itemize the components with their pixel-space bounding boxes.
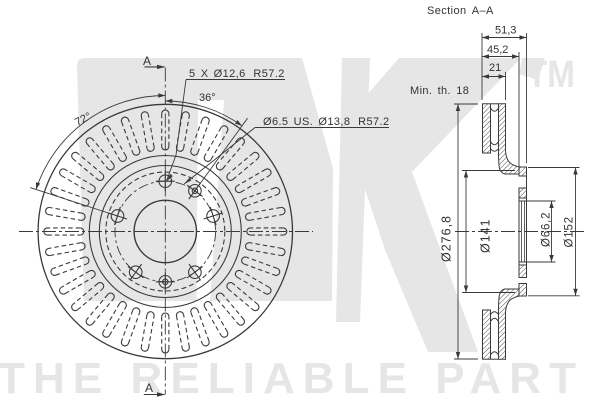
svg-text:Section A–A: Section A–A xyxy=(427,5,494,17)
svg-text:36°: 36° xyxy=(199,92,216,104)
svg-text:THE RELIABLE PART: THE RELIABLE PART xyxy=(0,354,576,400)
svg-text:TM: TM xyxy=(527,54,575,96)
svg-text:Ø152: Ø152 xyxy=(564,216,576,247)
svg-text:Ø6.5 US. Ø13,8 R57.2: Ø6.5 US. Ø13,8 R57.2 xyxy=(263,116,390,128)
svg-text:Ø66,2: Ø66,2 xyxy=(541,212,553,247)
svg-text:A: A xyxy=(145,381,153,395)
svg-text:21: 21 xyxy=(489,62,501,74)
svg-text:5 X Ø12,6 R57.2: 5 X Ø12,6 R57.2 xyxy=(189,68,285,80)
svg-text:Min. th. 18: Min. th. 18 xyxy=(410,85,469,97)
svg-text:51,3: 51,3 xyxy=(495,25,516,37)
svg-text:A: A xyxy=(143,54,151,68)
svg-text:45,2: 45,2 xyxy=(487,44,508,56)
svg-text:Ø141: Ø141 xyxy=(479,218,493,253)
svg-text:Ø276,8: Ø276,8 xyxy=(440,215,454,262)
